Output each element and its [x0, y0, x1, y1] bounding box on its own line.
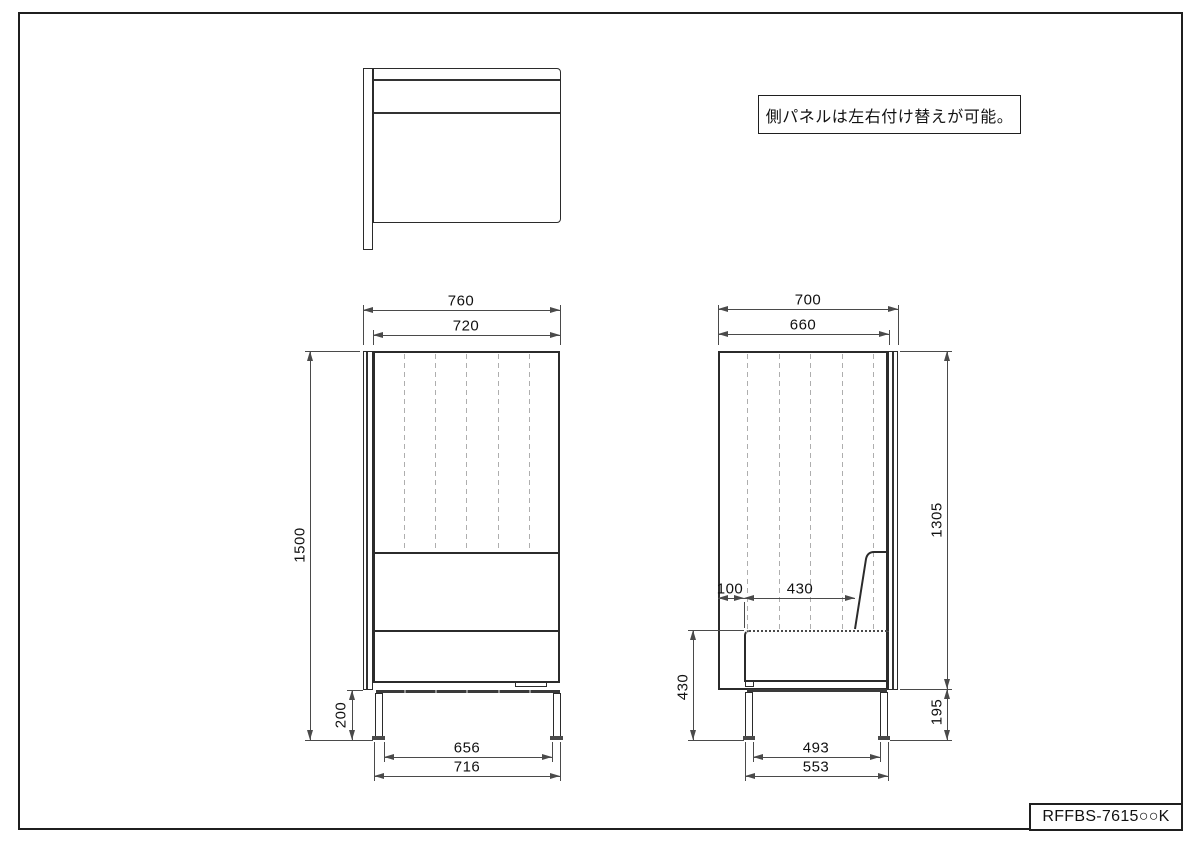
side-leg-rail [747, 689, 887, 692]
side-rear-foot [878, 736, 890, 740]
arrowhead [384, 754, 394, 760]
dim-label-side-inner-depth: 660 [790, 318, 817, 333]
ext-line [560, 742, 561, 781]
front-seat-top-line [374, 630, 559, 632]
side-seat [744, 630, 889, 682]
dim-line-front-overall-width [363, 310, 560, 311]
dim-label-front-inner-width: 720 [453, 319, 480, 334]
ext-line [688, 630, 744, 631]
dim-label-side-panel-clearance: 195 [930, 699, 945, 726]
side-rear-leg [880, 692, 888, 737]
ext-line [552, 742, 553, 762]
dim-label-front-leg-height: 200 [334, 702, 349, 729]
side-stitch-line [779, 354, 780, 629]
arrowhead [374, 773, 384, 779]
front-stitch-line [466, 354, 467, 551]
dim-line-side-panel-height [947, 351, 948, 689]
dim-line-side-seat-height [693, 630, 694, 740]
ext-line [305, 740, 373, 741]
front-stitch-line [435, 354, 436, 551]
dim-line-front-leg-outer-span [374, 776, 560, 777]
ext-line [688, 740, 744, 741]
arrowhead [745, 773, 755, 779]
top-view-backrest-line [374, 112, 560, 114]
arrowhead [944, 679, 950, 689]
ext-line [898, 305, 899, 345]
arrowhead [879, 331, 889, 337]
arrowhead [944, 351, 950, 361]
ext-line [880, 742, 881, 762]
side-front-foot [743, 736, 755, 740]
arrowhead [753, 754, 763, 760]
arrowhead [690, 630, 696, 640]
dim-line-side-seat-depth [744, 598, 855, 599]
side-seat-front-block [745, 681, 754, 687]
front-left-foot [372, 736, 385, 740]
arrowhead [744, 595, 754, 601]
side-stitch-line [842, 354, 843, 629]
dim-label-front-overall-width: 760 [448, 294, 475, 309]
arrowhead [944, 730, 950, 740]
dim-label-side-back-gap: 100 [717, 582, 744, 597]
top-view-back-panel-line [374, 79, 560, 81]
note-box: 側パネルは左右付け替えが可能。 [758, 95, 1021, 134]
front-right-leg [553, 693, 561, 737]
arrowhead [349, 690, 355, 700]
top-view-side-panel [363, 68, 373, 250]
rail-tick [404, 690, 406, 693]
ext-line [744, 602, 745, 628]
ext-line [890, 740, 952, 741]
front-view-side-panel-inner-line [366, 352, 368, 689]
ext-line [888, 742, 889, 781]
arrowhead [718, 306, 728, 312]
arrowhead [878, 773, 888, 779]
arrowhead [550, 332, 560, 338]
dim-line-side-inner-depth [718, 334, 889, 335]
side-backrest-contour [845, 545, 895, 635]
arrowhead [690, 730, 696, 740]
front-bottom-notch [515, 682, 547, 687]
dim-label-side-seat-height: 430 [676, 674, 691, 701]
arrowhead [307, 351, 313, 361]
part-number: RFFBS-7615○○K [1042, 808, 1169, 826]
arrowhead [373, 332, 383, 338]
arrowhead [307, 730, 313, 740]
front-left-leg [375, 693, 383, 737]
rail-tick [498, 690, 500, 693]
dim-label-front-overall-height: 1500 [293, 527, 308, 562]
sheet-border [18, 12, 1183, 830]
dim-line-side-leg-outer-span [745, 776, 888, 777]
arrowhead [870, 754, 880, 760]
rail-tick [466, 690, 468, 693]
dim-line-side-overall-depth [718, 309, 898, 310]
arrowhead [550, 307, 560, 313]
ext-line [889, 330, 890, 345]
ext-line [560, 305, 561, 345]
dim-label-side-leg-inner-span: 493 [803, 741, 830, 756]
side-stitch-line [747, 354, 748, 629]
dim-label-side-leg-outer-span: 553 [803, 760, 830, 775]
ext-line [305, 351, 360, 352]
front-stitch-line [404, 354, 405, 551]
title-block: RFFBS-7615○○K [1029, 803, 1183, 831]
arrowhead [550, 773, 560, 779]
arrowhead [542, 754, 552, 760]
dim-line-front-overall-height [310, 351, 311, 740]
front-stitch-line [529, 354, 530, 551]
side-view-back-inner-line [892, 352, 894, 689]
note-text: 側パネルは左右付け替えが可能。 [766, 103, 1014, 127]
dim-label-side-seat-depth: 430 [787, 582, 814, 597]
arrowhead [944, 689, 950, 699]
arrowhead [363, 307, 373, 313]
top-view-body [373, 68, 561, 223]
dim-label-front-leg-inner-span: 656 [454, 741, 481, 756]
dim-line-front-inner-width [373, 335, 560, 336]
front-view-side-panel-edge [363, 351, 373, 690]
arrowhead [718, 331, 728, 337]
front-right-foot [550, 736, 563, 740]
technical-drawing-sheet: 側パネルは左右付け替えが可能。 RFFBS-7615○○K [0, 0, 1200, 850]
front-backrest-bottom-line [374, 552, 559, 554]
side-front-leg [745, 692, 753, 737]
dim-label-side-overall-depth: 700 [795, 293, 822, 308]
rail-tick [529, 690, 531, 693]
arrowhead [888, 306, 898, 312]
dim-label-front-leg-outer-span: 716 [454, 760, 481, 775]
rail-tick [435, 690, 437, 693]
arrowhead [845, 595, 855, 601]
arrowhead [349, 730, 355, 740]
front-stitch-line [498, 354, 499, 551]
dim-label-side-panel-height: 1305 [930, 502, 945, 537]
